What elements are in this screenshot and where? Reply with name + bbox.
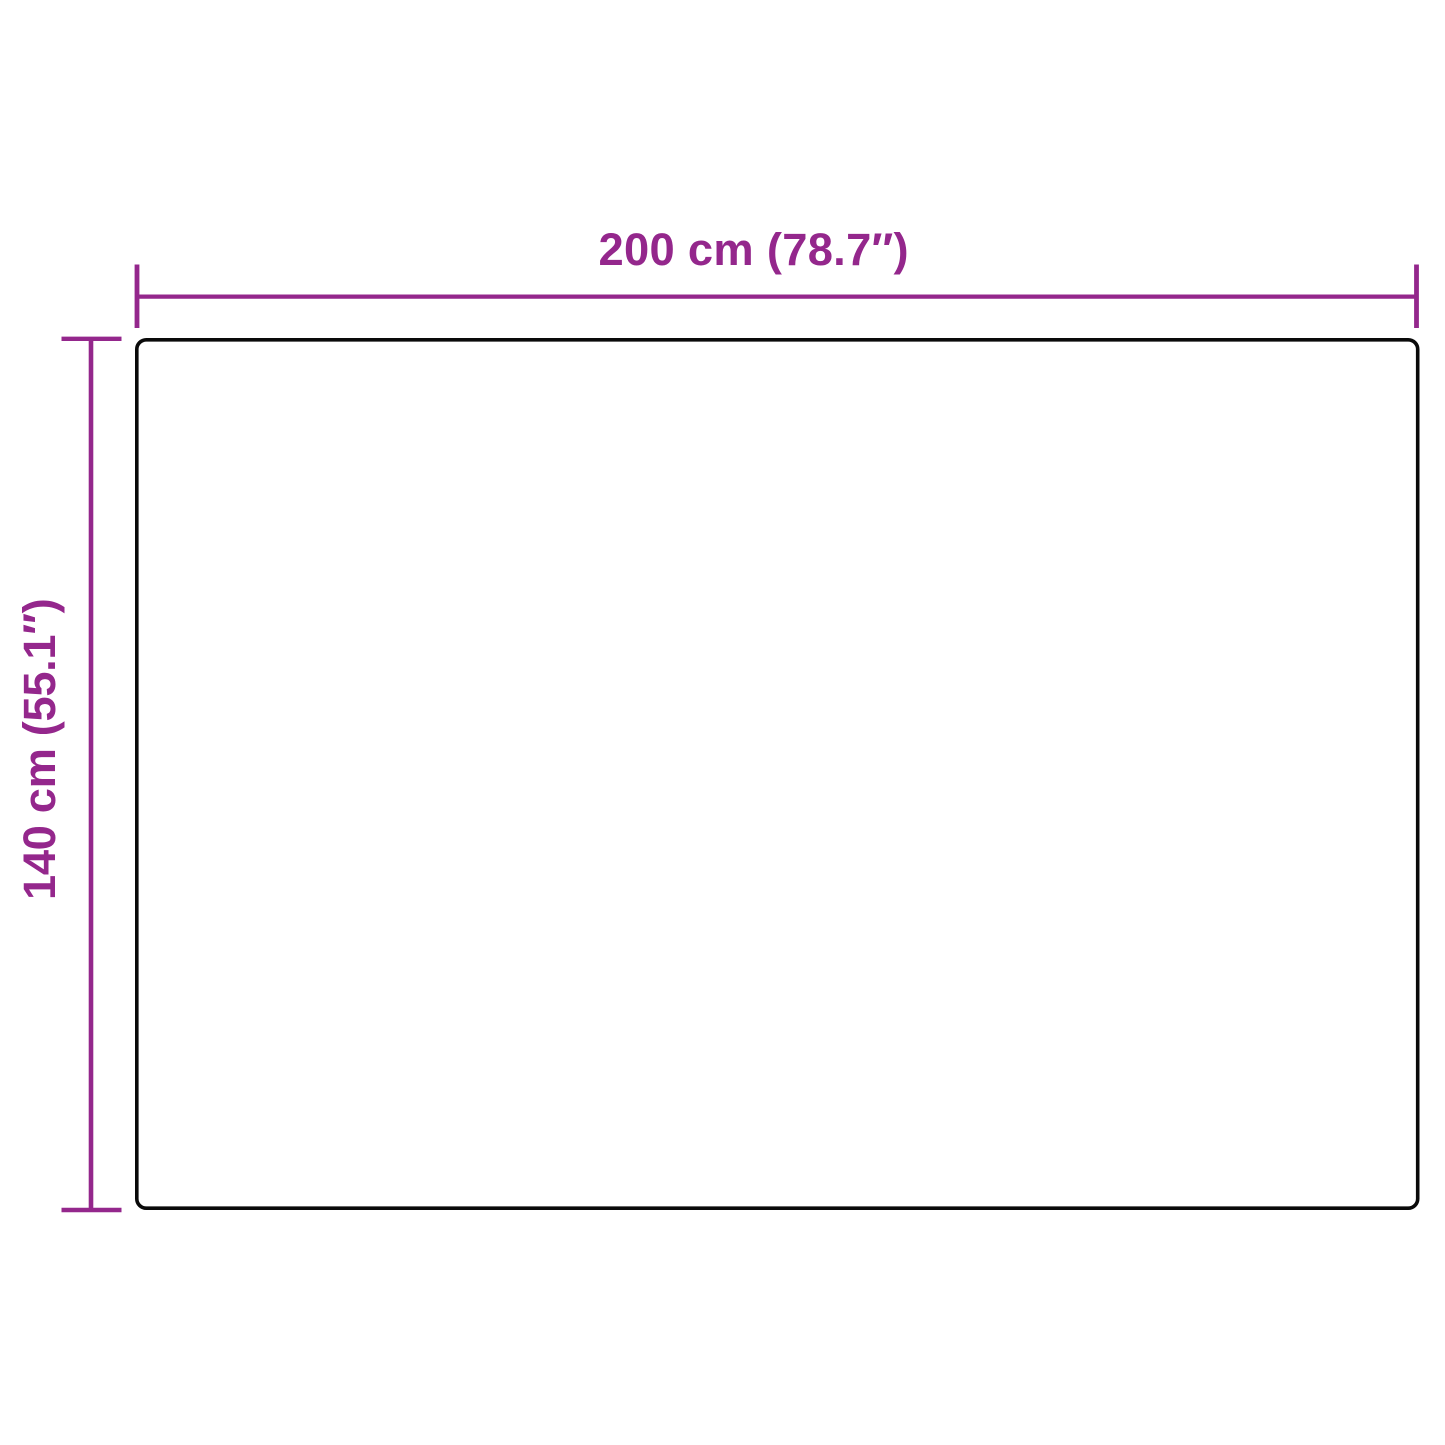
svg-text:200 cm (78.7″): 200 cm (78.7″) xyxy=(599,224,909,275)
svg-text:140 cm (55.1″): 140 cm (55.1″) xyxy=(14,599,65,900)
